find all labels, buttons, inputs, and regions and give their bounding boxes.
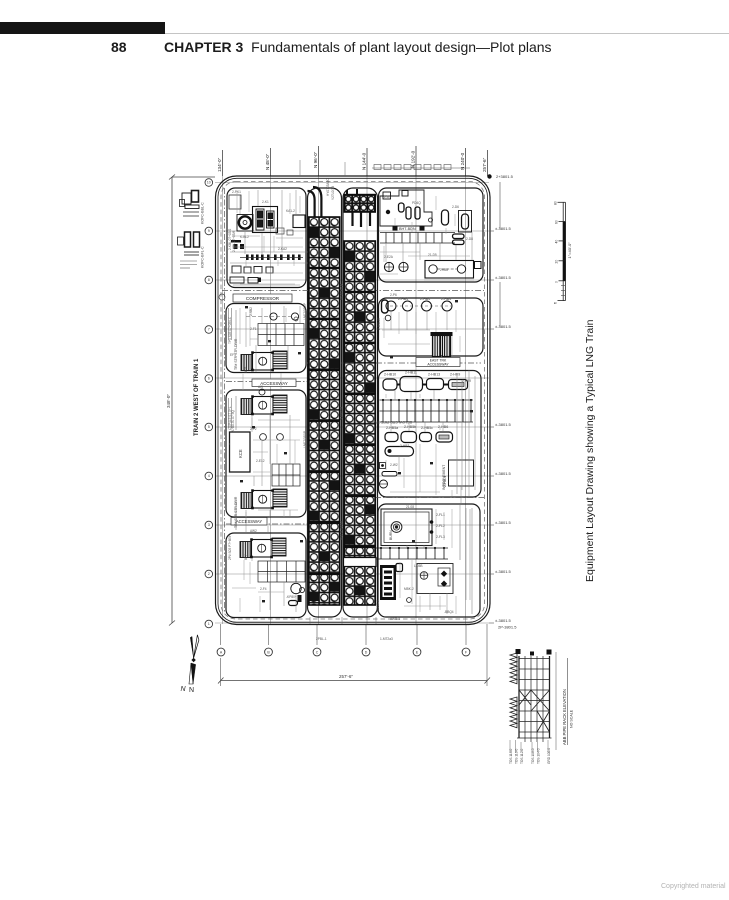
svg-text:±-3801.5: ±-3801.5 [495, 422, 512, 427]
svg-text:±-3801.5: ±-3801.5 [495, 520, 512, 525]
svg-text:21-D5: 21-D5 [428, 253, 437, 257]
svg-text:2-PK1: 2-PK1 [232, 190, 241, 194]
svg-text:-BBQ4: -BBQ4 [444, 610, 454, 614]
svg-text:N: N [189, 687, 194, 694]
svg-text:K-BL2: K-BL2 [240, 235, 249, 239]
svg-text:60: 60 [555, 220, 559, 224]
svg-text:1-MT2a3: 1-MT2a3 [380, 637, 393, 641]
svg-text:2-HB13: 2-HB13 [428, 373, 440, 377]
svg-text:TOS 118-0: TOS 118-0 [509, 748, 513, 764]
svg-text:8: 8 [208, 278, 210, 282]
svg-text:2-HB10: 2-HB10 [384, 373, 396, 377]
svg-text:±-3801.5: ±-3801.5 [495, 275, 512, 280]
svg-text:BHT-BDN: BHT-BDN [399, 227, 416, 231]
svg-text:6: 6 [208, 377, 210, 381]
svg-text:HY0705A#C: HY0705A#C [326, 178, 330, 196]
svg-text:80: 80 [554, 201, 558, 205]
svg-text:2-D1: 2-D1 [384, 195, 391, 199]
svg-text:21.08: 21.08 [406, 505, 414, 509]
svg-text:2-FL3: 2-FL3 [436, 535, 445, 539]
svg-text:2-HB4: 2-HB4 [441, 297, 451, 301]
svg-text:2P# S05 P7+B5Y: 2P# S05 P7+B5Y [228, 534, 232, 560]
svg-text:BFP: BFP [244, 554, 248, 560]
svg-text:D: D [365, 650, 368, 654]
svg-text:±-3801.5: ±-3801.5 [495, 569, 512, 574]
svg-text:ACCESSWAY: ACCESSWAY [427, 363, 449, 367]
svg-text:1: 1 [208, 622, 210, 626]
svg-text:Y27L0/3B: Y27L0/3B [331, 186, 335, 200]
svg-text:0: 0 [555, 281, 559, 283]
svg-text:ft: ft [554, 302, 558, 304]
svg-text:KBB7-V: KBB7-V [376, 599, 380, 612]
svg-text:5: 5 [208, 425, 210, 429]
svg-text:2-FL1: 2-FL1 [436, 513, 445, 517]
svg-text:AWB-1: AWB-1 [390, 617, 400, 621]
svg-text:0Y3J07+08: 0Y3J07+08 [340, 284, 344, 300]
svg-text:GRD 100-0: GRD 100-0 [547, 748, 551, 764]
svg-text:2PBL-1: 2PBL-1 [316, 637, 327, 641]
svg-text:2-HB5b: 2-HB5b [404, 425, 416, 429]
svg-text:TOS 104-0: TOS 104-0 [537, 748, 541, 764]
svg-text:MBK-2: MBK-2 [404, 587, 414, 591]
svg-text:2-D8: 2-D8 [466, 237, 473, 241]
svg-text:2-KBL 07+05/8: 2-KBL 07+05/8 [232, 231, 236, 252]
svg-text:AW2: AW2 [250, 529, 257, 533]
svg-text:TRAIN 2 WEST OF TRAIN 1: TRAIN 2 WEST OF TRAIN 1 [194, 358, 200, 436]
svg-text:2-E12: 2-E12 [256, 459, 265, 463]
svg-text:2-W2: 2-W2 [390, 463, 398, 467]
svg-text:348′-0″: 348′-0″ [166, 394, 171, 408]
svg-text:2-D6: 2-D6 [452, 205, 459, 209]
svg-text:2-KA2: 2-KA2 [278, 247, 287, 251]
svg-text:BELOW GRD PIPE TRACK: BELOW GRD PIPE TRACK [367, 420, 412, 424]
svg-text:2-K1: 2-K1 [262, 200, 269, 204]
svg-text:2-P6: 2-P6 [390, 293, 397, 297]
svg-text:L-05B: L-05B [414, 564, 423, 568]
svg-text:2-F4: 2-F4 [260, 587, 267, 591]
svg-text:A: A [220, 650, 223, 654]
svg-text:N 48′-0″: N 48′-0″ [265, 153, 270, 170]
svg-text:KOFC-BBL-C: KOFC-BBL-C [201, 202, 205, 224]
svg-text:N 240′-0: N 240′-0 [460, 152, 465, 170]
svg-text:2+3801.5: 2+3801.5 [496, 174, 514, 179]
svg-text:2-HB4: 2-HB4 [398, 297, 408, 301]
svg-text:4: 4 [208, 474, 210, 478]
svg-text:2-PB07/1: 2-PB07/1 [340, 406, 344, 420]
svg-text:3: 3 [208, 523, 210, 527]
svg-text:COMPRESSOR: COMPRESSOR [246, 296, 280, 301]
svg-text:20: 20 [555, 260, 559, 264]
svg-text:TOS 116-0: TOS 116-0 [515, 748, 519, 764]
svg-text:AW: AW [258, 385, 263, 389]
svg-text:257′-6″: 257′-6″ [339, 674, 353, 679]
svg-text:KCE: KCE [238, 449, 243, 458]
svg-text:PD4Q: PD4Q [412, 201, 421, 205]
svg-text:TP# S05 07+05/LC: TP# S05 07+05/LC [228, 316, 232, 344]
svg-text:257′-6″: 257′-6″ [482, 157, 487, 172]
svg-text:L8/07/3J0/P: L8/07/3J0/P [303, 303, 307, 320]
svg-text:IMPROVEMENT: IMPROVEMENT [442, 465, 446, 490]
svg-text:L8/07/3J0/P: L8/07/3J0/P [303, 431, 307, 448]
svg-text:N 144′-0: N 144′-0 [362, 152, 367, 170]
svg-text:±-3801.5: ±-3801.5 [495, 324, 512, 329]
svg-text:2-FL2: 2-FL2 [436, 524, 445, 528]
svg-text:±-3801.5: ±-3801.5 [495, 471, 512, 476]
svg-text:ACCESSWAY: ACCESSWAY [260, 381, 288, 386]
svg-text:-2-HB7: -2-HB7 [399, 444, 409, 448]
svg-text:2HB8: 2HB8 [440, 268, 448, 272]
svg-text:ABB PIPE RACK ELEVATION: ABB PIPE RACK ELEVATION [562, 689, 567, 745]
svg-text:-KP80+: -KP80+ [286, 595, 297, 599]
svg-text:2-HB4: 2-HB4 [420, 297, 430, 301]
svg-text:HB0-5 45B/H: HB0-5 45B/H [340, 521, 344, 540]
svg-text:N: N [181, 686, 187, 693]
svg-text:9: 9 [208, 229, 210, 233]
svg-text:2-HB5c: 2-HB5c [421, 426, 433, 430]
svg-text:TOS 108-0: TOS 108-0 [531, 748, 535, 764]
svg-text:A7B0-5L 07 5Q: A7B0-5L 07 5Q [231, 410, 235, 432]
svg-text:2: 2 [208, 572, 210, 576]
svg-text:2-SB2: 2-SB2 [249, 307, 253, 316]
svg-text:40: 40 [555, 240, 559, 244]
svg-text:EF1: EF1 [230, 353, 236, 357]
svg-text:KA1-2: KA1-2 [286, 209, 295, 213]
svg-text:1″=40′-0″: 1″=40′-0″ [567, 242, 572, 259]
svg-text:C: C [316, 650, 319, 654]
svg-text:E: E [416, 650, 419, 654]
svg-text:±-3801.5: ±-3801.5 [495, 618, 512, 623]
svg-text:B: B [267, 650, 270, 654]
svg-text:2-F1: 2-F1 [250, 327, 257, 331]
svg-text:BFP: BFP [244, 367, 248, 373]
svg-text:2-BSL07: 2-BSL07 [377, 317, 381, 330]
svg-text:ACCESSWAY: ACCESSWAY [236, 519, 262, 524]
svg-text:2-HB11: 2-HB11 [405, 371, 417, 375]
svg-text:2-HB9: 2-HB9 [450, 373, 460, 377]
svg-text:10: 10 [207, 181, 211, 185]
svg-text:7: 7 [208, 328, 210, 332]
svg-text:KOFC-BFL-C: KOFC-BFL-C [201, 246, 205, 268]
svg-text:2-HB9: 2-HB9 [462, 379, 471, 383]
svg-text:NO SCALE: NO SCALE [570, 709, 574, 728]
svg-text:BURN: BURN [389, 530, 393, 540]
svg-text:2-HB5a: 2-HB5a [386, 426, 398, 430]
svg-text:134′-0″: 134′-0″ [217, 157, 222, 172]
svg-text:2-E2A: 2-E2A [384, 255, 394, 259]
svg-text:±-3801.5: ±-3801.5 [495, 226, 512, 231]
svg-text:2P-3801.5: 2P-3801.5 [498, 625, 517, 630]
svg-text:TOS 112-0: TOS 112-0 [520, 748, 524, 764]
svg-text:F: F [465, 650, 467, 654]
svg-text:N 96′-0″: N 96′-0″ [313, 151, 318, 168]
